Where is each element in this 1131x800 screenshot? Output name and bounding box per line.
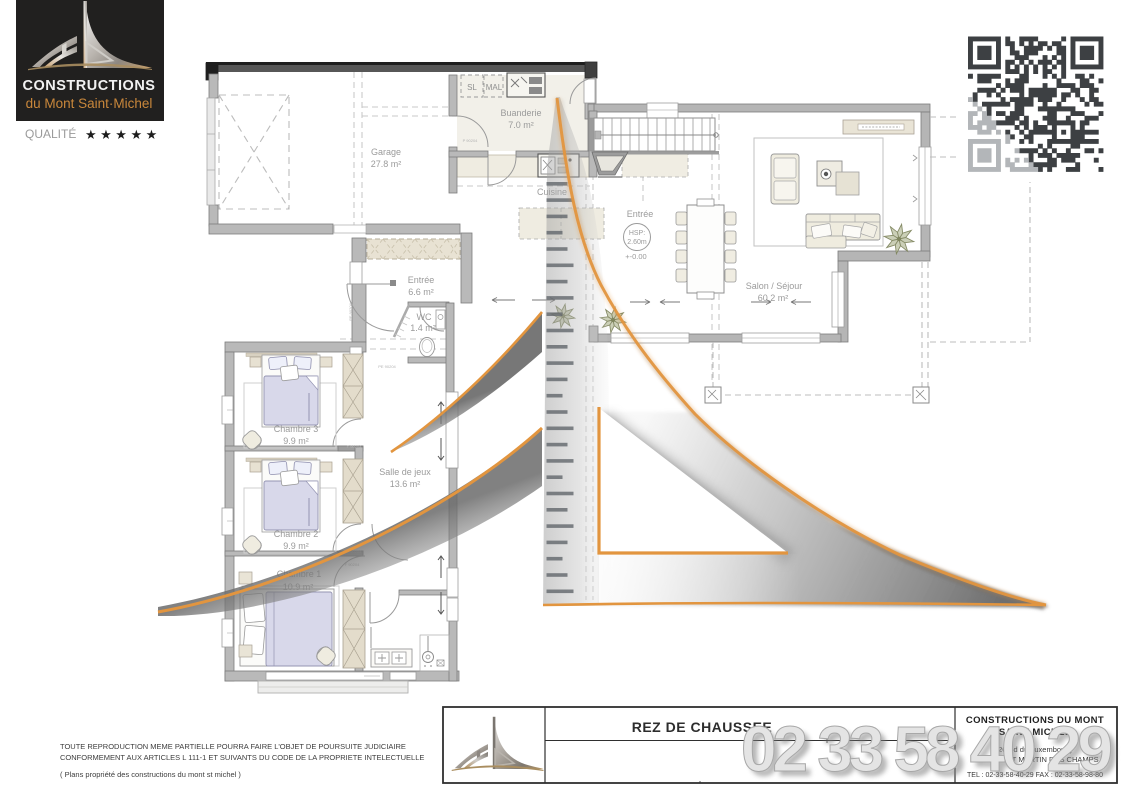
svg-text:P 90204: P 90204 — [463, 138, 479, 143]
svg-text:7.0 m²: 7.0 m² — [508, 120, 534, 130]
svg-text:Entrée: Entrée — [627, 209, 654, 219]
svg-text:QUALITÉ: QUALITÉ — [25, 126, 76, 141]
svg-text:HSP:: HSP: — [629, 230, 645, 237]
svg-text:PE 90204: PE 90204 — [348, 302, 353, 320]
svg-text:Garage: Garage — [371, 147, 401, 157]
svg-text:9.9 m²: 9.9 m² — [283, 436, 309, 446]
svg-text:02 33 58 40 29: 02 33 58 40 29 — [741, 713, 1113, 785]
svg-text:13.6 m²: 13.6 m² — [390, 479, 421, 489]
svg-text:TOUTE REPRODUCTION MEME PARTIE: TOUTE REPRODUCTION MEME PARTIELLE POURRA… — [60, 742, 406, 751]
svg-text:SL: SL — [467, 83, 477, 92]
svg-text:9.9 m²: 9.9 m² — [283, 541, 309, 551]
svg-text:CONSTRUCTIONS: CONSTRUCTIONS — [23, 78, 156, 94]
svg-text:27.8 m²: 27.8 m² — [371, 159, 402, 169]
svg-text:WC: WC — [417, 312, 432, 322]
svg-text:Chambre 2: Chambre 2 — [274, 529, 319, 539]
svg-text:PE 90204: PE 90204 — [378, 364, 396, 369]
svg-text:Salon / Séjour: Salon / Séjour — [746, 281, 803, 291]
svg-text:6.6 m²: 6.6 m² — [408, 287, 434, 297]
svg-text:Salle de jeux: Salle de jeux — [379, 467, 431, 477]
svg-text:1.4 m²: 1.4 m² — [410, 323, 436, 333]
svg-text:CONFORMEMENT AUX ARTICLES L 11: CONFORMEMENT AUX ARTICLES L 111-1 ET SUI… — [60, 753, 424, 762]
svg-text:Entrée: Entrée — [408, 275, 435, 285]
svg-text:+-0.00: +-0.00 — [625, 252, 646, 261]
svg-text:du Mont Saint·Michel: du Mont Saint·Michel — [26, 96, 153, 111]
svg-text:2.60m: 2.60m — [627, 239, 647, 246]
svg-text:MAL: MAL — [486, 83, 503, 92]
svg-text:( Plans propriété des construc: ( Plans propriété des constructions du m… — [60, 770, 241, 779]
svg-text:Buanderie: Buanderie — [500, 108, 541, 118]
svg-text:F 90204: F 90204 — [347, 444, 362, 449]
svg-text:★★★★★: ★★★★★ — [85, 127, 161, 142]
svg-text:Chambre 3: Chambre 3 — [274, 424, 319, 434]
svg-text:60.2 m²: 60.2 m² — [758, 293, 789, 303]
